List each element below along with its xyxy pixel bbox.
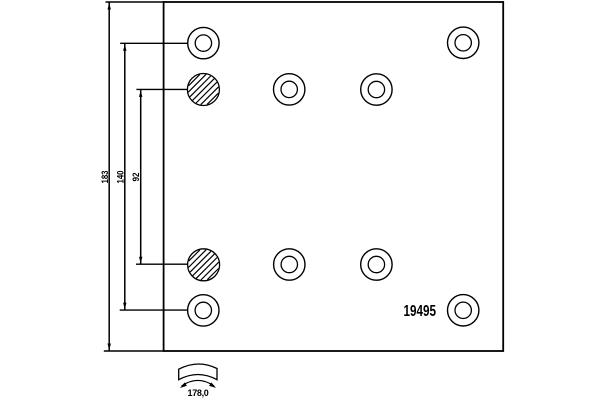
svg-text:19495: 19495: [404, 303, 437, 320]
svg-text:92: 92: [131, 173, 141, 182]
svg-text:178,0: 178,0: [187, 388, 208, 398]
svg-text:183: 183: [100, 171, 110, 184]
svg-text:140: 140: [116, 171, 126, 184]
